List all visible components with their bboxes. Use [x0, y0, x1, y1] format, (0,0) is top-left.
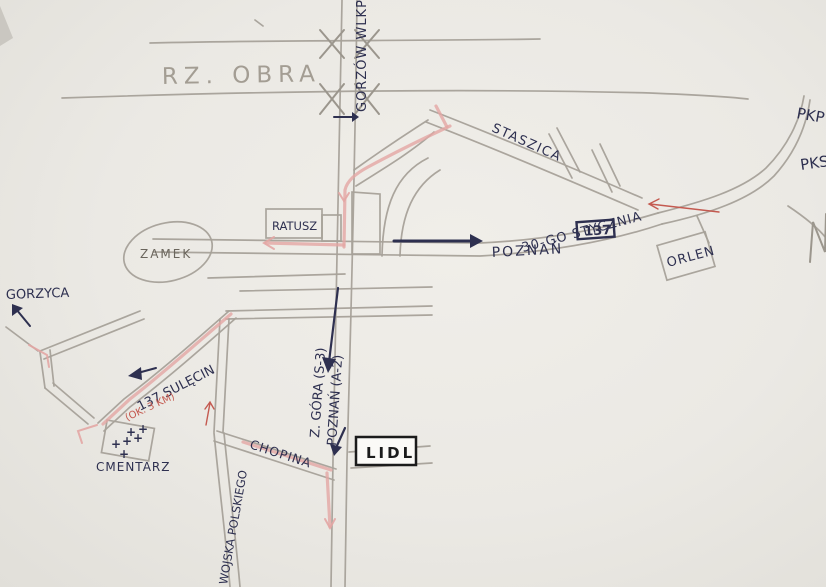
right-edge-zigzag	[810, 214, 826, 262]
sulecin-arrow-head-icon	[128, 367, 142, 380]
south-route-arrow-shaft	[329, 288, 338, 362]
pencil-road-network	[6, 0, 826, 587]
bridge-icon	[320, 30, 379, 114]
route-west-leg	[266, 243, 344, 245]
side-street-4	[226, 315, 432, 319]
pkp-station-label: PKP	[795, 104, 826, 127]
route-cemetery-jog	[78, 425, 97, 443]
chopina-street-label: CHOPINA	[248, 437, 314, 471]
grave-cross-icon: +	[119, 447, 129, 461]
scan-corner-smudge	[0, 6, 13, 46]
side-street-3	[226, 306, 432, 311]
scanned-map-page: 137 LIDL + + + + + + RZ. OBRA GORZÓW WLK…	[0, 0, 826, 587]
side-street-1	[208, 274, 345, 278]
gorzow-road-label: GORZÓW WLKP	[354, 0, 370, 112]
red-arrow-up-icon	[205, 402, 214, 425]
staszica-south-edge	[426, 122, 638, 210]
zamek-label: ZAMEK	[140, 247, 192, 261]
river-bank-north	[150, 39, 540, 43]
stycznia-street-label: 30-GO STYCZNIA	[520, 209, 644, 256]
far-right-road	[788, 206, 826, 238]
lidl-label: LIDL	[366, 444, 415, 462]
map-labels: RZ. OBRA GORZÓW WLKP STASZICA PKP PKS RA…	[6, 0, 826, 586]
staszica-cross-street-2	[592, 144, 620, 192]
river-bank-south	[62, 91, 748, 99]
road-to-cemetery	[45, 383, 94, 424]
pks-station-label: PKS	[799, 152, 826, 174]
city-block	[352, 192, 380, 254]
gorzyca-road-1	[40, 311, 140, 351]
grave-cross-icon: +	[133, 431, 143, 445]
orlen-label: ORLEN	[665, 244, 717, 271]
hand-drawn-map: 137 LIDL + + + + + + RZ. OBRA GORZÓW WLK…	[0, 0, 826, 587]
gorzyca-road-2	[44, 319, 144, 359]
ratusz-label: RATUSZ	[272, 219, 317, 233]
link-road-east-edge	[223, 319, 229, 432]
river-label: RZ. OBRA	[162, 61, 321, 90]
gorzyca-direction-label: GORZYCA	[6, 286, 70, 303]
route-south-leg	[327, 473, 330, 527]
pencil-scribble	[255, 20, 263, 26]
lidl-badge: LIDL	[356, 437, 416, 465]
cmentarz-label: CMENTARZ	[96, 460, 170, 474]
poznan-arrow-head-icon	[470, 234, 483, 248]
road-to-pkp-north-edge	[658, 96, 804, 213]
ink-arrows	[12, 112, 483, 456]
landmark-outlines	[101, 209, 715, 461]
grave-cross-icon: +	[122, 434, 132, 448]
wojska-street-label: WOJSKA POLSKIEGO	[216, 469, 250, 586]
